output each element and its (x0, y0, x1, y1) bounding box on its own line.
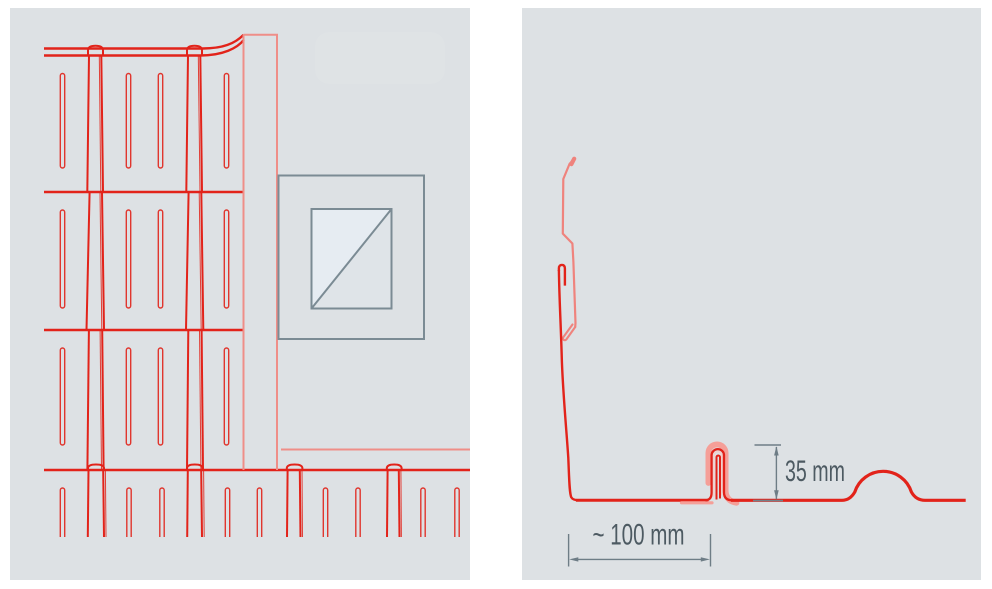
svg-text:35 mm: 35 mm (785, 455, 845, 488)
svg-text:~ 100 mm: ~ 100 mm (593, 519, 685, 552)
